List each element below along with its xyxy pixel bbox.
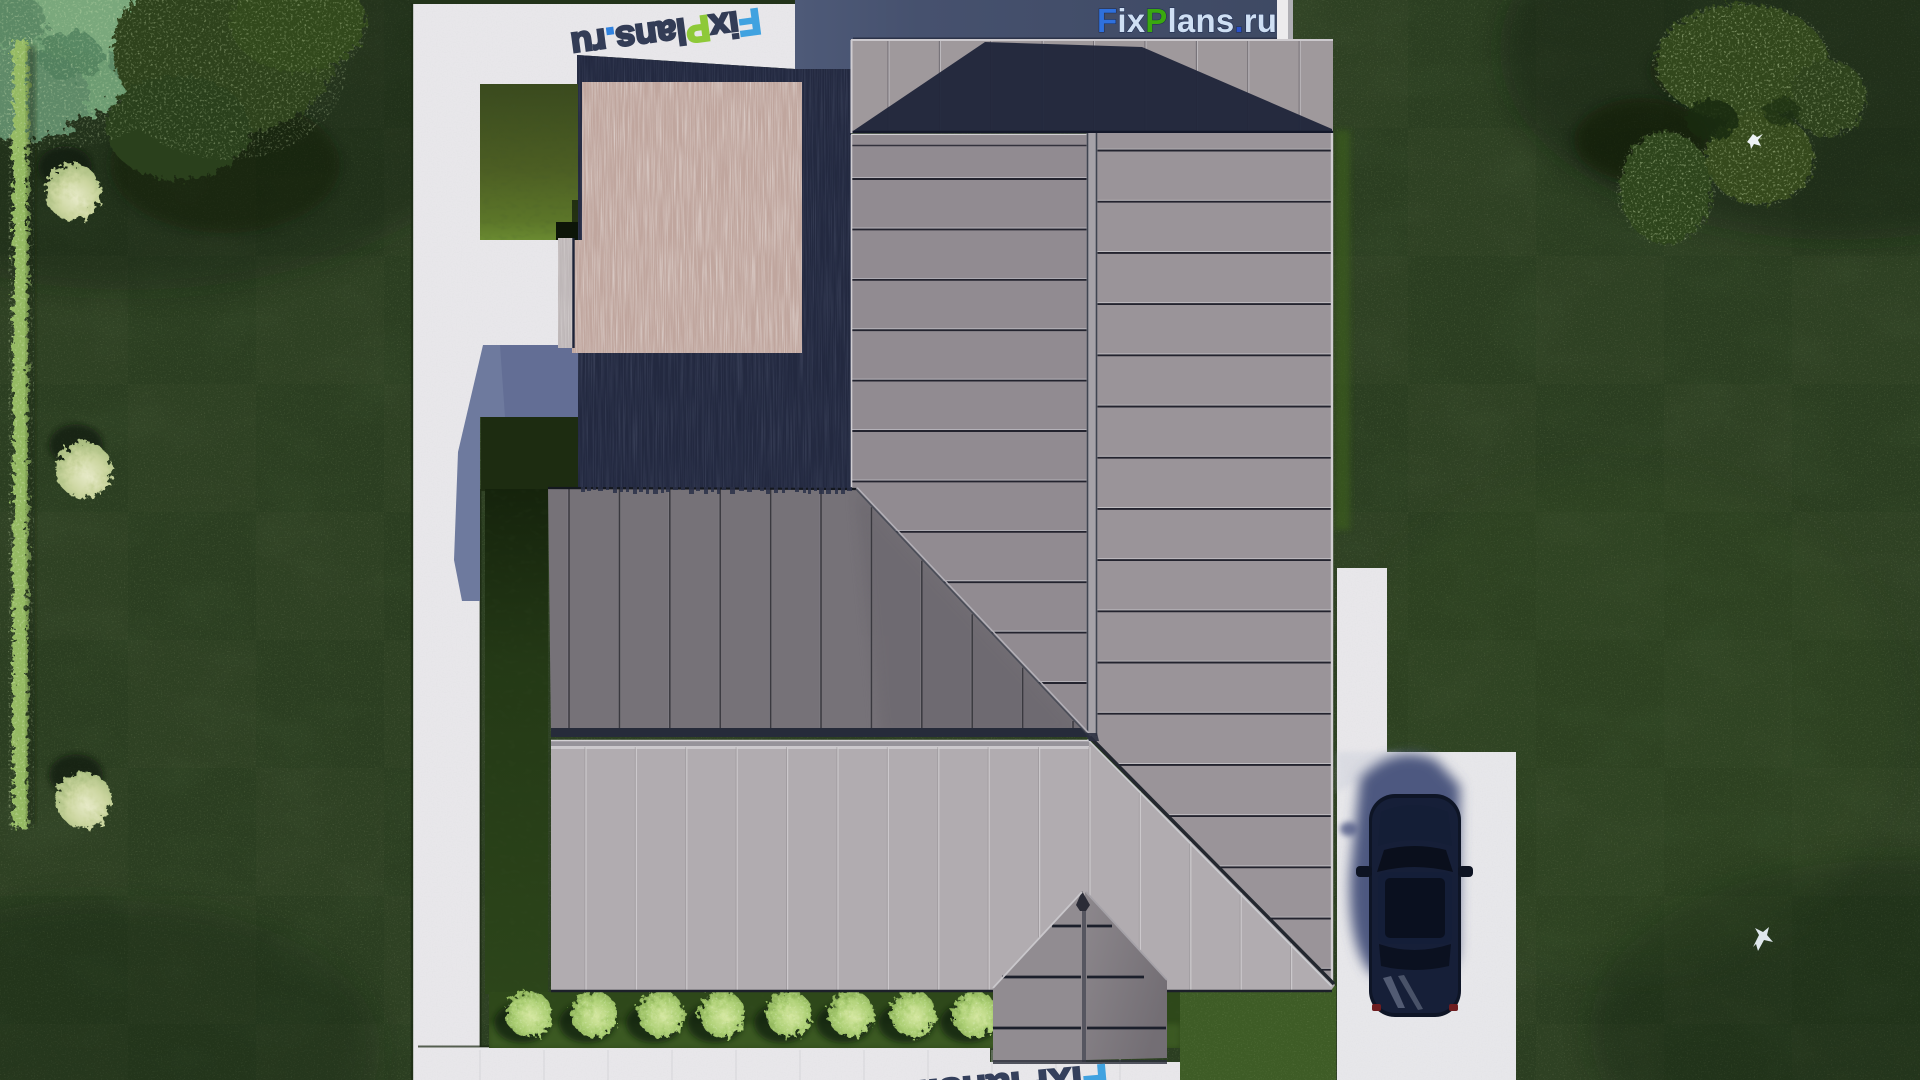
svg-text:FixPlans.ru: FixPlans.ru — [1097, 2, 1277, 39]
